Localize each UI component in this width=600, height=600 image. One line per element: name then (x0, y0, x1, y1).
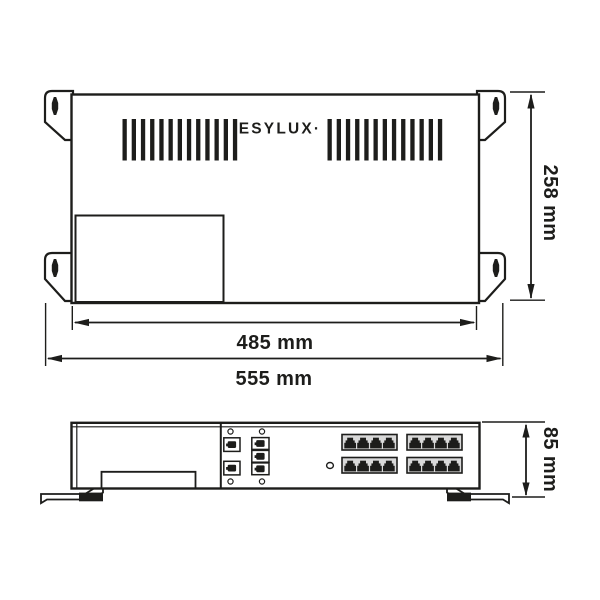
dimension-outer-width-label: 555 mm (236, 368, 313, 390)
vent-slot (150, 119, 154, 161)
mounting-bracket-top-right (477, 91, 505, 140)
rj45-plug-icon (436, 440, 445, 443)
vent-slot (346, 119, 350, 161)
rj45-plug-icon (383, 443, 395, 449)
rj45-plug-icon (344, 443, 356, 449)
vent-slot (224, 119, 228, 161)
rj45-plug-icon (346, 463, 355, 466)
rj45-plug-icon (424, 440, 433, 443)
vent-slot (205, 119, 209, 161)
rj45-plug-icon (451, 438, 457, 441)
rj45-plug-icon (370, 466, 382, 472)
rj45-plug-icon (436, 463, 445, 466)
dimension-depth: 85 mm (482, 422, 561, 497)
rj45-plug-icon (370, 443, 382, 449)
arrow-right-icon (487, 355, 502, 362)
rj45-plug-icon (409, 443, 421, 449)
port-plug-icon (228, 465, 236, 472)
port-plug-icon (255, 442, 257, 445)
vent-slot (337, 119, 341, 161)
mounting-bracket-top-left (45, 91, 73, 140)
dimension-height-label: 258 mm (539, 165, 561, 242)
dimension-height: 258 mm (510, 92, 561, 300)
rj45-plug-icon (422, 443, 434, 449)
rj45-plug-icon (438, 438, 444, 441)
rj45-plug-icon (425, 461, 431, 464)
port-plug-icon (226, 467, 228, 470)
arrow-up-icon (522, 424, 529, 438)
vent-slot (141, 119, 145, 161)
vent-slot (438, 119, 442, 161)
rj45-plug-icon (386, 438, 392, 441)
rj45-plug-icon (360, 438, 366, 441)
rj45-plug-icon (448, 466, 460, 472)
rj45-bank (342, 458, 397, 474)
dimension-inner-width-label: 485 mm (237, 332, 314, 354)
vent-slot (196, 119, 200, 161)
rj45-plug-icon (411, 463, 420, 466)
front-housing (72, 423, 480, 489)
rj45-plug-icon (384, 463, 393, 466)
rj45-plug-icon (412, 461, 418, 464)
cable-recess-top-view (76, 216, 224, 303)
technical-drawing-page: ESYLUX· 258 mm 485 mm 555 mm (0, 0, 600, 600)
rj45-plug-icon (383, 466, 395, 472)
rj45-plug-icon (344, 466, 356, 472)
vent-slot (374, 119, 378, 161)
rj45-plug-icon (360, 461, 366, 464)
arrow-down-icon (527, 284, 534, 299)
arrow-up-icon (527, 94, 534, 109)
vent-slot (233, 119, 237, 161)
brand-logo-text: ESYLUX· (239, 121, 322, 138)
vent-slot (429, 119, 433, 161)
vent-slot (178, 119, 182, 161)
port-plug-icon (255, 468, 257, 471)
vent-slot (132, 119, 136, 161)
rj45-bank (342, 435, 397, 451)
port-plug-icon (256, 453, 264, 460)
rj45-plug-icon (449, 463, 458, 466)
vent-slot (401, 119, 405, 161)
rj45-plug-icon (386, 461, 392, 464)
rj45-plug-icon (422, 466, 434, 472)
rj45-plug-icon (357, 466, 369, 472)
rj45-plug-icon (425, 438, 431, 441)
foot-pad-right (447, 493, 471, 502)
rj45-bank (407, 435, 462, 451)
rj45-plug-icon (451, 461, 457, 464)
rj45-plug-icon (359, 440, 368, 443)
dimensional-drawing-svg: ESYLUX· 258 mm 485 mm 555 mm (0, 0, 600, 600)
port-plug-icon (256, 465, 264, 472)
vent-slot (169, 119, 173, 161)
rj45-bank (407, 458, 462, 474)
vent-slot (123, 119, 127, 161)
vent-slot (355, 119, 359, 161)
rj45-plug-icon (384, 440, 393, 443)
rj45-plug-icon (373, 461, 379, 464)
vent-slot (159, 119, 163, 161)
port-plug-icon (226, 444, 228, 447)
rj45-plug-icon (346, 440, 355, 443)
mounting-bracket-bottom-right (477, 253, 505, 301)
vent-slot (187, 119, 191, 161)
rj45-plug-icon (448, 443, 460, 449)
port-plug-icon (255, 455, 257, 458)
rj45-plug-icon (409, 466, 421, 472)
rj45-plug-icon (359, 463, 368, 466)
vent-slot (215, 119, 219, 161)
rj45-plug-icon (347, 461, 353, 464)
dimension-inner-width: 485 mm (72, 306, 476, 354)
arrow-left-icon (74, 319, 90, 326)
front-view (41, 423, 509, 503)
rj45-plug-icon (438, 461, 444, 464)
arrow-down-icon (522, 483, 529, 497)
mounting-bracket-bottom-left (45, 253, 73, 301)
port-plug-icon (256, 440, 264, 447)
top-view: ESYLUX· (45, 91, 505, 303)
rj45-plug-icon (371, 463, 380, 466)
rj45-plug-icon (412, 438, 418, 441)
port-plug-icon (228, 441, 236, 448)
rj45-plug-icon (449, 440, 458, 443)
rj45-plug-icon (424, 463, 433, 466)
arrow-left-icon (47, 355, 62, 362)
rj45-plug-icon (347, 438, 353, 441)
vent-slot (364, 119, 368, 161)
rj45-plug-icon (435, 466, 447, 472)
vent-slot (420, 119, 424, 161)
foot-pad-left (79, 493, 103, 502)
rj45-plug-icon (373, 438, 379, 441)
dimension-depth-label: 85 mm (539, 427, 561, 492)
vent-slot (392, 119, 396, 161)
vent-slot (328, 119, 332, 161)
rj45-plug-icon (411, 440, 420, 443)
arrow-right-icon (460, 319, 476, 326)
rj45-plug-icon (357, 443, 369, 449)
rj45-plug-icon (371, 440, 380, 443)
vent-slot (383, 119, 387, 161)
rj45-plug-icon (435, 443, 447, 449)
vent-slot (410, 119, 414, 161)
